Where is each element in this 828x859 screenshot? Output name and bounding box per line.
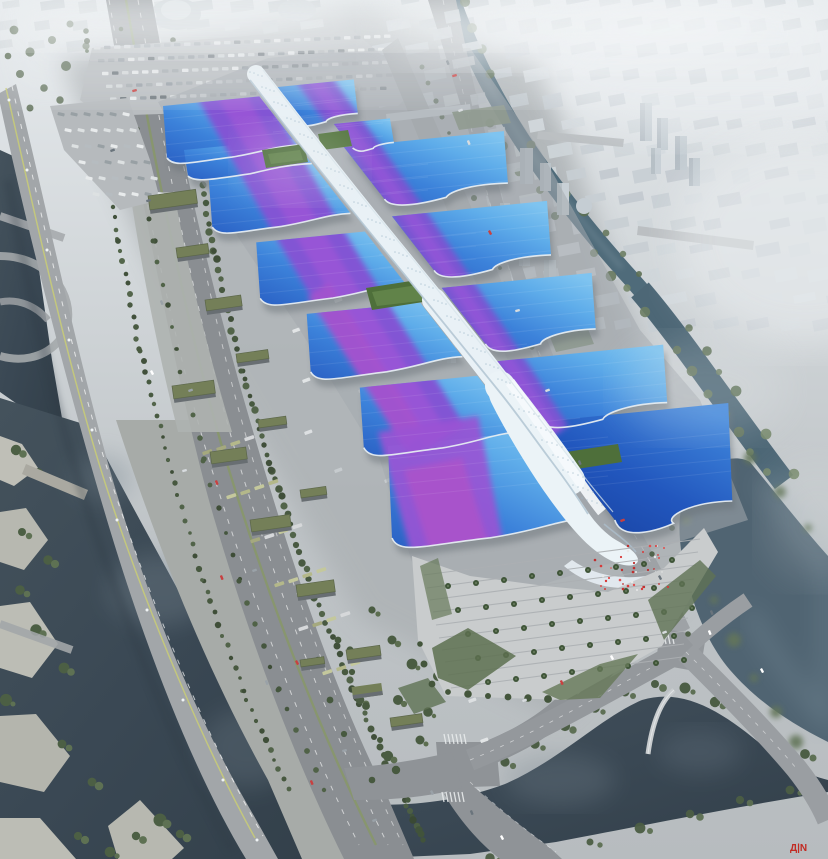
svg-text:Д|N: Д|N [790,843,807,854]
